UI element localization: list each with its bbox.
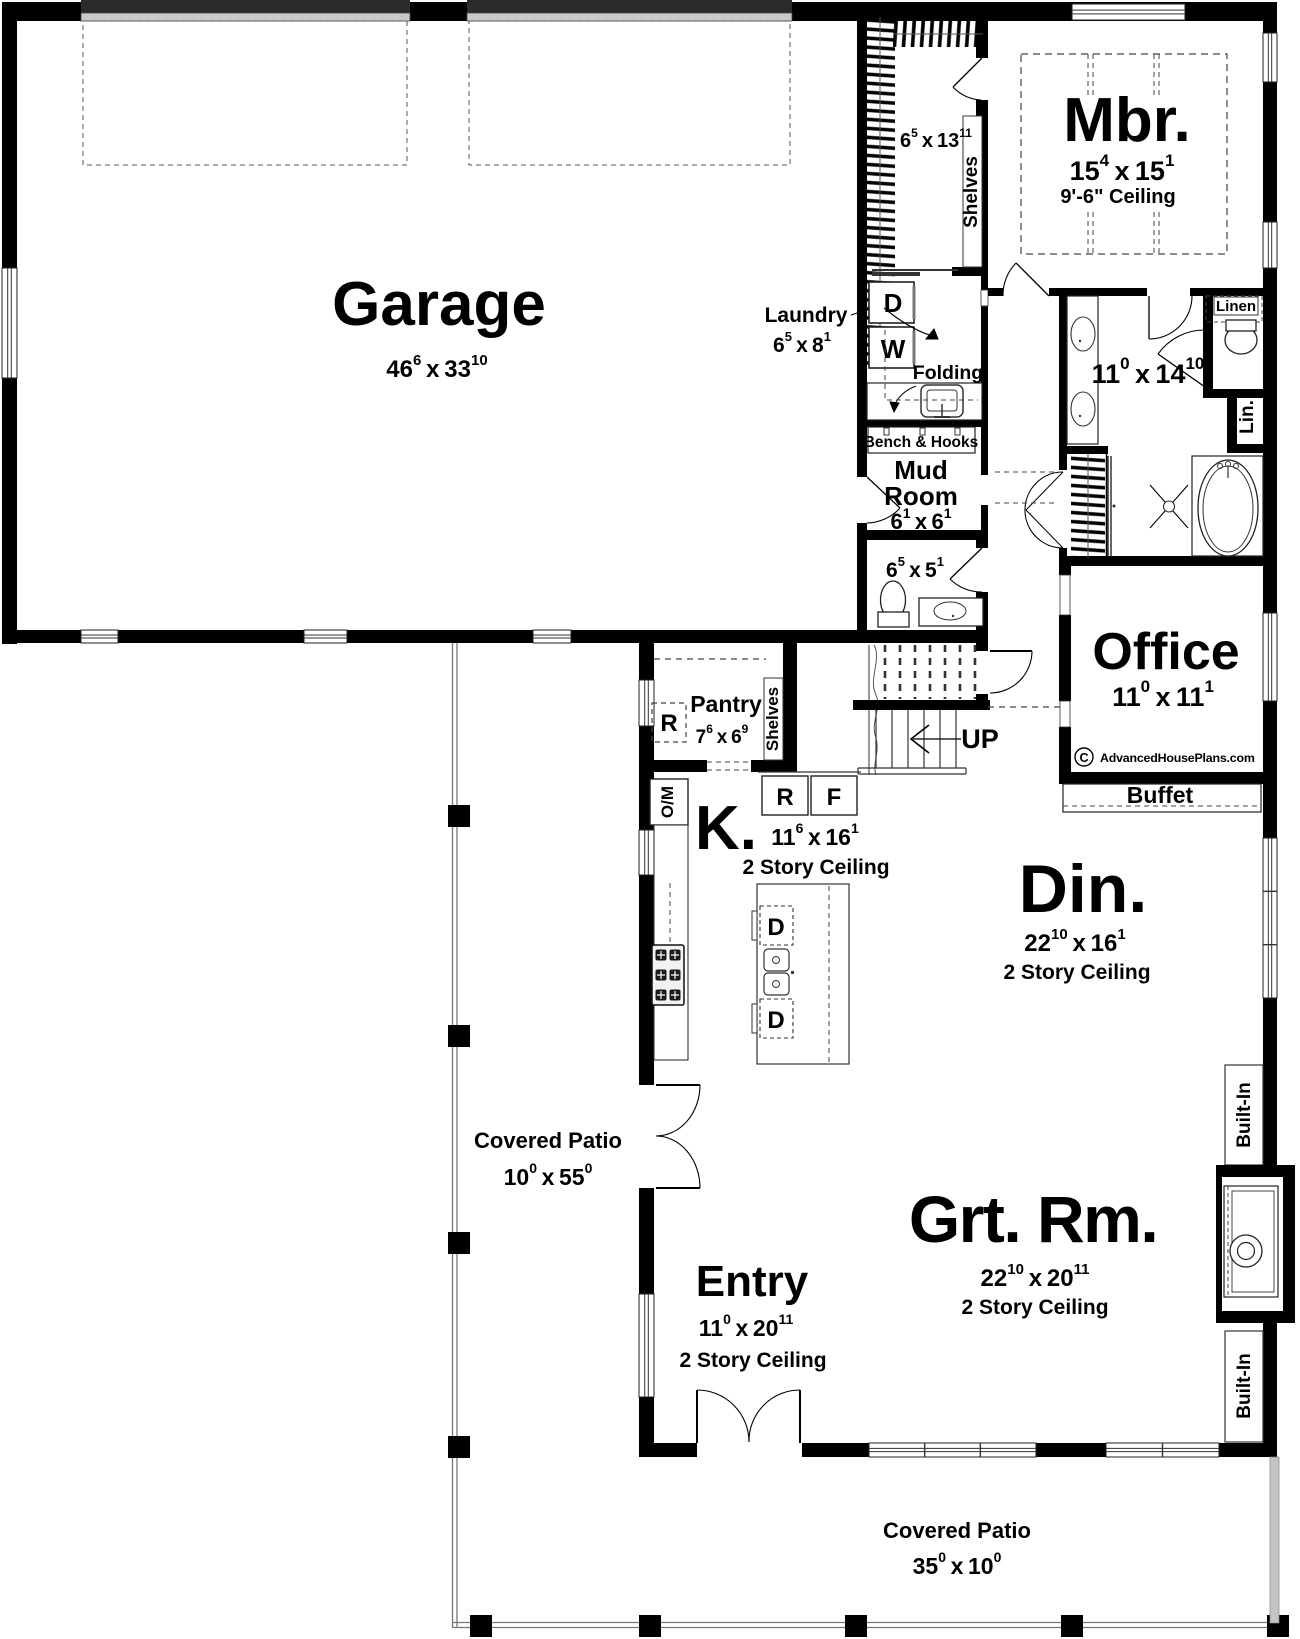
svg-text:Folding: Folding <box>913 362 983 384</box>
svg-text:2 Story Ceiling: 2 Story Ceiling <box>742 856 889 879</box>
svg-text:Lin.: Lin. <box>1237 400 1258 434</box>
svg-text:D: D <box>767 914 784 941</box>
svg-text:Laundry: Laundry <box>765 304 848 327</box>
svg-text:Grt. Rm.: Grt. Rm. <box>909 1182 1157 1256</box>
svg-text:2 Story Ceiling: 2 Story Ceiling <box>961 1296 1108 1319</box>
svg-text:R: R <box>660 710 677 737</box>
svg-text:F: F <box>827 784 842 811</box>
svg-text:2 Story Ceiling: 2 Story Ceiling <box>1003 961 1150 984</box>
svg-text:Built-In: Built-In <box>1234 1353 1255 1418</box>
svg-text:2210 x 161: 2210 x 161 <box>1024 926 1125 957</box>
svg-text:9'-6" Ceiling: 9'-6" Ceiling <box>1060 186 1175 208</box>
svg-text:Built-In: Built-In <box>1234 1082 1255 1147</box>
svg-text:Din.: Din. <box>1019 851 1147 927</box>
svg-text:Covered Patio: Covered Patio <box>474 1128 622 1153</box>
svg-text:UP: UP <box>961 724 999 754</box>
svg-text:65 x 81: 65 x 81 <box>773 329 831 357</box>
svg-text:Office: Office <box>1092 623 1239 681</box>
svg-text:Entry: Entry <box>696 1257 809 1306</box>
svg-text:Pantry: Pantry <box>690 691 762 717</box>
svg-text:61 x 61: 61 x 61 <box>890 505 951 534</box>
svg-text:W: W <box>881 334 906 364</box>
svg-text:D: D <box>767 1007 784 1034</box>
svg-text:R: R <box>776 784 793 811</box>
svg-text:Garage: Garage <box>332 270 546 339</box>
svg-text:154 x 151: 154 x 151 <box>1070 151 1175 186</box>
svg-text:100 x 550: 100 x 550 <box>504 1160 593 1190</box>
svg-text:Linen: Linen <box>1216 298 1256 315</box>
svg-text:110 x 111: 110 x 111 <box>1112 677 1214 712</box>
svg-text:O/M: O/M <box>658 786 677 818</box>
svg-text:116 x 161: 116 x 161 <box>771 820 859 850</box>
svg-text:65 x 51: 65 x 51 <box>886 554 944 582</box>
svg-text:Covered Patio: Covered Patio <box>883 1518 1031 1543</box>
svg-text:AdvancedHousePlans.com: AdvancedHousePlans.com <box>1100 751 1255 765</box>
svg-text:K.: K. <box>695 794 757 863</box>
svg-text:Shelves: Shelves <box>961 156 982 228</box>
svg-text:Mbr.: Mbr. <box>1063 86 1190 155</box>
svg-text:Shelves: Shelves <box>763 687 782 751</box>
svg-text:Buffet: Buffet <box>1127 782 1194 808</box>
svg-text:D: D <box>884 288 903 318</box>
svg-text:Bench & Hooks: Bench & Hooks <box>864 434 979 451</box>
svg-text:350 x 100: 350 x 100 <box>913 1549 1002 1579</box>
svg-text:C: C <box>1079 751 1088 765</box>
svg-text:2210 x 2011: 2210 x 2011 <box>981 1261 1090 1292</box>
svg-text:2 Story Ceiling: 2 Story Ceiling <box>679 1349 826 1372</box>
